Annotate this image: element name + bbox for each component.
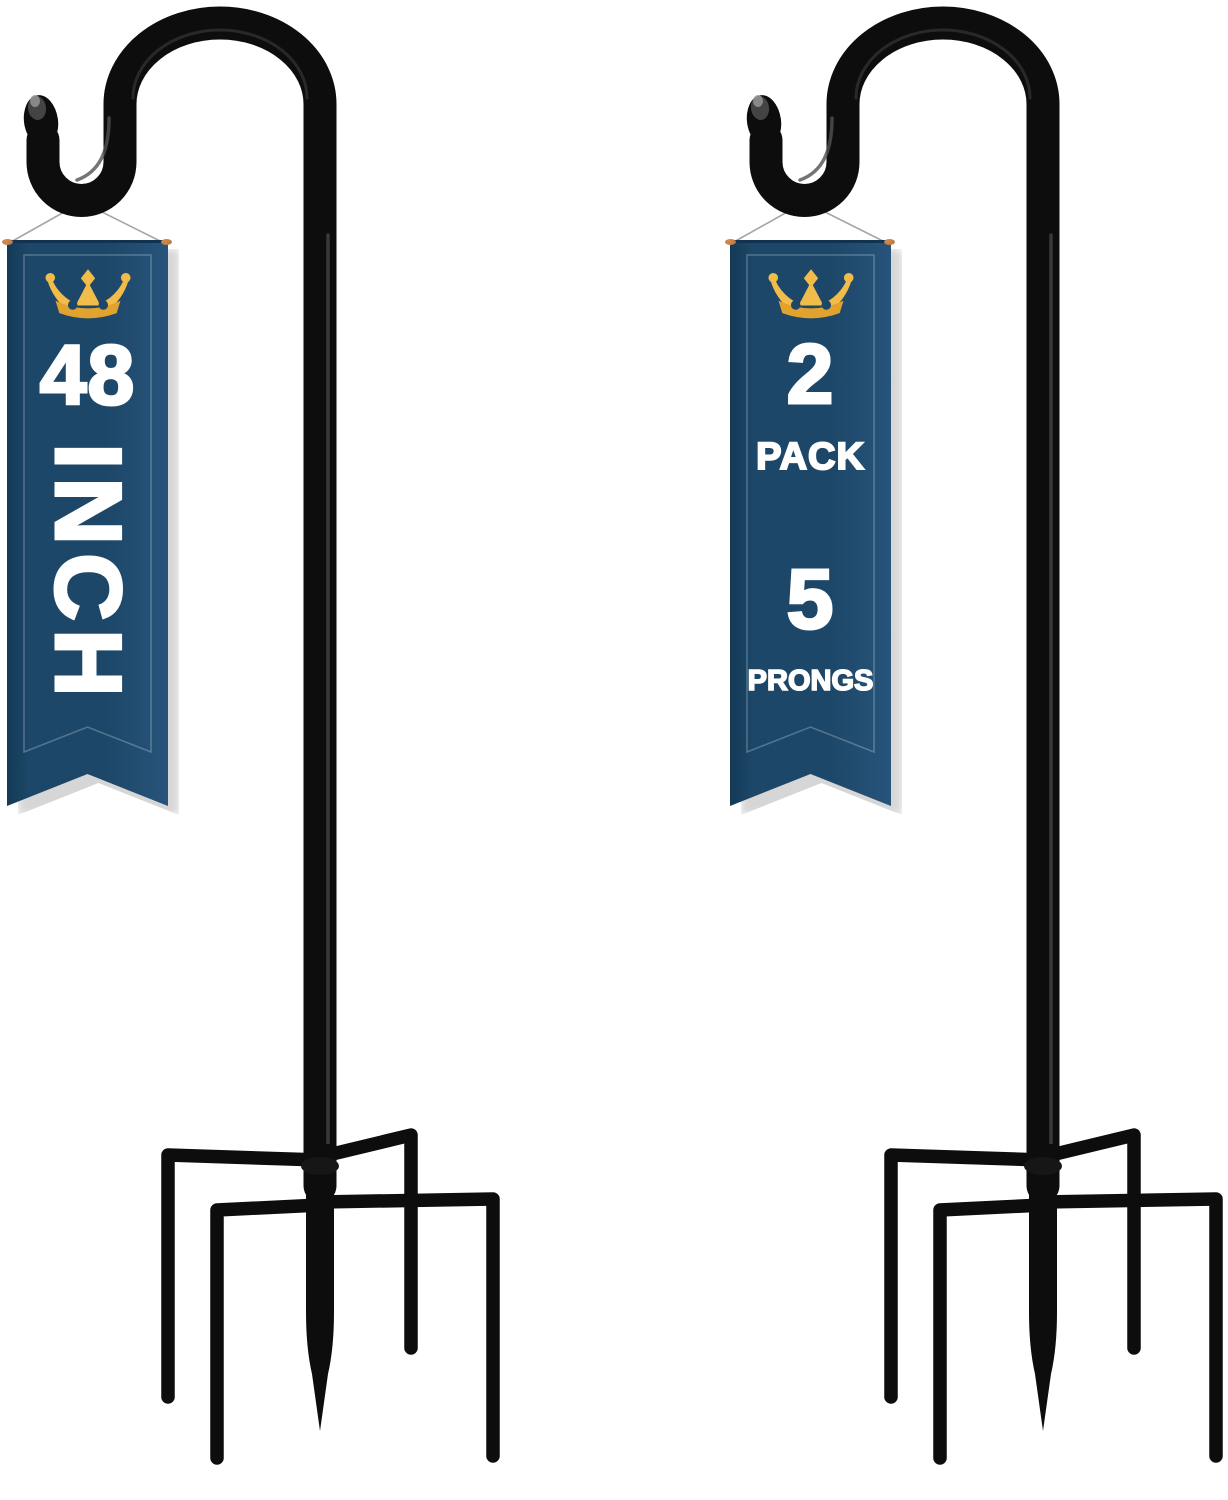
base-prong-back-left — [168, 1155, 320, 1397]
banner-pack-value: 2 — [730, 332, 891, 416]
base-prong-back-left — [891, 1155, 1043, 1397]
banner-prongs-value: 5 — [730, 557, 891, 641]
banner-pin-left — [2, 239, 13, 245]
banner-pin-right — [161, 239, 172, 245]
knob-shine — [753, 95, 763, 107]
crown-shape — [768, 269, 853, 318]
base-weld — [301, 1157, 339, 1175]
base-prong-front-left — [940, 1205, 1043, 1458]
base-weld — [1024, 1157, 1062, 1175]
banner-prongs-label: PRONGS — [730, 667, 891, 696]
base-prong-front-left — [217, 1205, 320, 1458]
crown-icon — [45, 269, 131, 321]
shepherd-hook-right: 2 PACK 5 PRONGS — [723, 0, 1228, 1500]
knob-shine — [30, 95, 40, 107]
ground-spike — [306, 1186, 334, 1431]
shepherd-hook-left: 48 INCH — [0, 0, 520, 1500]
ground-spike — [1029, 1186, 1057, 1431]
ribbon-banner-pack: 2 PACK 5 PRONGS — [730, 240, 891, 806]
crown-shape — [45, 269, 130, 318]
banner-face: 2 PACK 5 PRONGS — [730, 240, 891, 806]
banner-size-unit: INCH — [41, 443, 135, 705]
banner-pin-right — [884, 239, 895, 245]
banner-size-value: 48 — [7, 333, 168, 417]
banner-pin-left — [725, 239, 736, 245]
crown-icon — [768, 269, 854, 321]
ribbon-banner-size: 48 INCH — [7, 240, 168, 806]
product-image: 48 INCH — [0, 0, 1228, 1500]
banner-face: 48 INCH — [7, 240, 168, 806]
banner-pack-label: PACK — [730, 438, 891, 476]
banner-inner-border — [730, 240, 891, 806]
